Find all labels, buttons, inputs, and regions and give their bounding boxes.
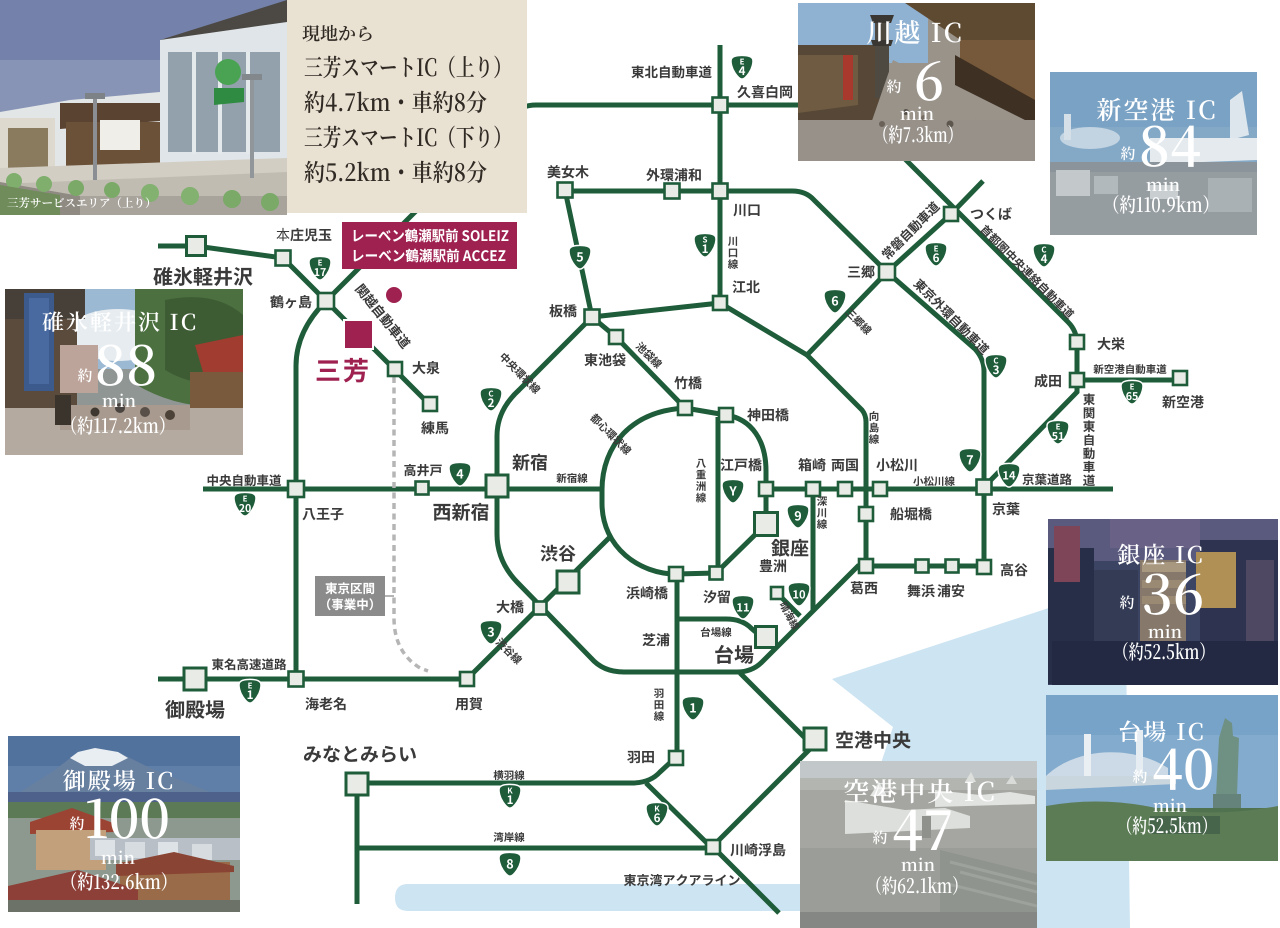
svg-text:みなとみらい: みなとみらい <box>303 740 417 767</box>
svg-text:美女木: 美女木 <box>547 162 589 182</box>
svg-text:65: 65 <box>1126 389 1139 404</box>
svg-text:（約52.5km）: （約52.5km） <box>1118 810 1217 839</box>
svg-text:6: 6 <box>831 290 838 309</box>
svg-text:小松川線: 小松川線 <box>913 474 955 489</box>
svg-text:大泉: 大泉 <box>412 358 440 378</box>
svg-text:9: 9 <box>794 505 801 524</box>
svg-text:6: 6 <box>933 250 940 266</box>
svg-text:台場線: 台場線 <box>700 625 732 640</box>
svg-text:現地から: 現地から <box>302 20 374 46</box>
svg-text:久喜白岡: 久喜白岡 <box>737 82 793 102</box>
svg-text:4: 4 <box>456 463 464 482</box>
svg-text:船堀橋: 船堀橋 <box>890 504 932 524</box>
svg-text:外環浦和: 外環浦和 <box>646 165 702 185</box>
svg-text:（約132.6km）: （約132.6km） <box>61 866 177 895</box>
svg-text:5: 5 <box>576 246 583 265</box>
svg-text:約4.7km・車約8分: 約4.7km・車約8分 <box>304 83 487 118</box>
svg-text:大橋: 大橋 <box>496 597 524 617</box>
svg-text:約: 約 <box>77 365 92 386</box>
svg-text:新空港: 新空港 <box>1162 392 1204 412</box>
svg-text:1: 1 <box>247 687 254 703</box>
svg-text:三芳スマートIC（下り）: 三芳スマートIC（下り） <box>304 118 512 153</box>
svg-text:約: 約 <box>1119 592 1134 613</box>
svg-text:約: 約 <box>1132 766 1147 787</box>
svg-text:江北: 江北 <box>732 277 760 297</box>
svg-text:3: 3 <box>487 621 494 640</box>
svg-text:東池袋: 東池袋 <box>584 350 626 370</box>
svg-text:7: 7 <box>966 449 973 468</box>
svg-text:20: 20 <box>239 501 252 516</box>
svg-text:14: 14 <box>1002 467 1016 483</box>
svg-text:1: 1 <box>702 241 709 257</box>
svg-text:川口: 川口 <box>733 200 761 220</box>
svg-text:大栄: 大栄 <box>1097 334 1125 354</box>
svg-text:約: 約 <box>886 76 901 97</box>
svg-text:東名高速道路: 東名高速道路 <box>211 654 287 673</box>
svg-text:約: 約 <box>872 827 887 848</box>
svg-text:レーベン鶴瀬駅前 ACCEZ: レーベン鶴瀬駅前 ACCEZ <box>351 245 506 266</box>
svg-text:芝浦: 芝浦 <box>642 630 670 650</box>
svg-text:板橋: 板橋 <box>549 301 577 321</box>
svg-text:羽田: 羽田 <box>627 747 655 767</box>
svg-text:レーベン鶴瀬駅前 SOLEIZ: レーベン鶴瀬駅前 SOLEIZ <box>351 225 509 246</box>
svg-text:三郷: 三郷 <box>847 262 875 282</box>
svg-text:新宿: 新宿 <box>512 449 548 475</box>
svg-text:箱崎: 箱崎 <box>798 455 826 475</box>
svg-text:高井戸: 高井戸 <box>403 460 442 479</box>
svg-text:三芳スマートIC（上り）: 三芳スマートIC（上り） <box>304 48 512 83</box>
svg-text:51: 51 <box>1052 429 1065 444</box>
svg-text:2: 2 <box>488 395 495 411</box>
svg-text:1: 1 <box>689 697 696 716</box>
svg-text:羽田線: 羽田線 <box>654 686 665 724</box>
svg-text:京葉: 京葉 <box>992 499 1020 519</box>
svg-text:Y: Y <box>728 480 737 499</box>
svg-text:御殿場: 御殿場 <box>165 694 225 723</box>
svg-text:（約62.1km）: （約62.1km） <box>867 870 968 899</box>
svg-text:渋谷: 渋谷 <box>540 540 576 566</box>
svg-text:新宿線: 新宿線 <box>556 471 588 486</box>
svg-text:川崎浮島: 川崎浮島 <box>730 840 786 860</box>
svg-text:成田: 成田 <box>1034 371 1062 391</box>
svg-text:舞浜: 舞浜 <box>907 581 935 601</box>
svg-text:1: 1 <box>507 792 514 808</box>
svg-text:葛西: 葛西 <box>850 578 878 598</box>
svg-text:八王子: 八王子 <box>302 504 344 524</box>
svg-text:浦安: 浦安 <box>937 581 965 601</box>
svg-text:（約7.3km）: （約7.3km） <box>874 119 962 148</box>
svg-text:西新宿: 西新宿 <box>432 498 489 525</box>
svg-text:約: 約 <box>1120 143 1135 164</box>
svg-text:（約110.9km）: （約110.9km） <box>1103 189 1219 218</box>
svg-text:東関東自動車道: 東関東自動車道 <box>1083 389 1096 489</box>
svg-text:8: 8 <box>506 853 513 872</box>
svg-text:深川線: 深川線 <box>817 494 828 532</box>
svg-text:約5.2km・車約8分: 約5.2km・車約8分 <box>304 153 487 188</box>
svg-text:湾岸線: 湾岸線 <box>493 830 525 845</box>
svg-text:中央自動車道: 中央自動車道 <box>206 470 282 489</box>
svg-text:約: 約 <box>69 813 84 834</box>
svg-text:川口線: 川口線 <box>728 234 739 272</box>
svg-text:八重洲線: 八重洲線 <box>696 456 707 506</box>
svg-text:京葉道路: 京葉道路 <box>1022 469 1073 488</box>
svg-text:向島線: 向島線 <box>869 409 880 447</box>
svg-text:高谷: 高谷 <box>1000 560 1028 580</box>
svg-text:台場: 台場 <box>714 639 754 668</box>
svg-text:東北自動車道: 東北自動車道 <box>631 61 712 81</box>
svg-text:竹橋: 竹橋 <box>674 373 702 393</box>
svg-text:3: 3 <box>993 362 1000 378</box>
svg-text:（約117.2km）: （約117.2km） <box>61 410 175 439</box>
svg-text:両国: 両国 <box>831 455 859 475</box>
svg-text:碓氷軽井沢: 碓氷軽井沢 <box>153 261 253 290</box>
svg-text:100: 100 <box>84 778 170 854</box>
svg-text:小松川: 小松川 <box>876 455 918 475</box>
svg-text:鶴ヶ島: 鶴ヶ島 <box>270 292 312 312</box>
svg-text:練馬: 練馬 <box>421 418 449 438</box>
svg-text:三芳サービスエリア（上り）: 三芳サービスエリア（上り） <box>7 195 157 211</box>
svg-text:用賀: 用賀 <box>455 694 483 714</box>
svg-text:東京湾アクアライン: 東京湾アクアライン <box>623 870 740 889</box>
svg-text:本庄児玉: 本庄児玉 <box>276 225 332 245</box>
svg-text:6: 6 <box>654 810 661 826</box>
svg-text:min: min <box>102 387 136 412</box>
svg-text:空港中央: 空港中央 <box>835 726 911 753</box>
svg-text:三芳: 三芳 <box>315 351 371 388</box>
svg-text:4: 4 <box>1041 251 1048 267</box>
svg-text:浜崎橋: 浜崎橋 <box>626 583 668 603</box>
svg-text:10: 10 <box>792 586 806 602</box>
svg-text:（事業中）: （事業中） <box>319 594 382 613</box>
svg-text:江戸橋: 江戸橋 <box>720 455 762 475</box>
svg-text:（約52.5km）: （約52.5km） <box>1114 636 1215 665</box>
svg-text:海老名: 海老名 <box>305 694 347 714</box>
svg-text:新空港自動車道: 新空港自動車道 <box>1093 362 1167 377</box>
svg-text:17: 17 <box>314 265 327 280</box>
svg-text:汐留: 汐留 <box>703 587 731 607</box>
svg-text:豊洲: 豊洲 <box>759 556 787 576</box>
svg-text:4: 4 <box>739 63 746 79</box>
svg-text:11: 11 <box>736 599 749 615</box>
svg-text:つくば: つくば <box>970 204 1012 224</box>
svg-text:横羽線: 横羽線 <box>493 768 525 783</box>
svg-text:神田橋: 神田橋 <box>747 405 789 425</box>
